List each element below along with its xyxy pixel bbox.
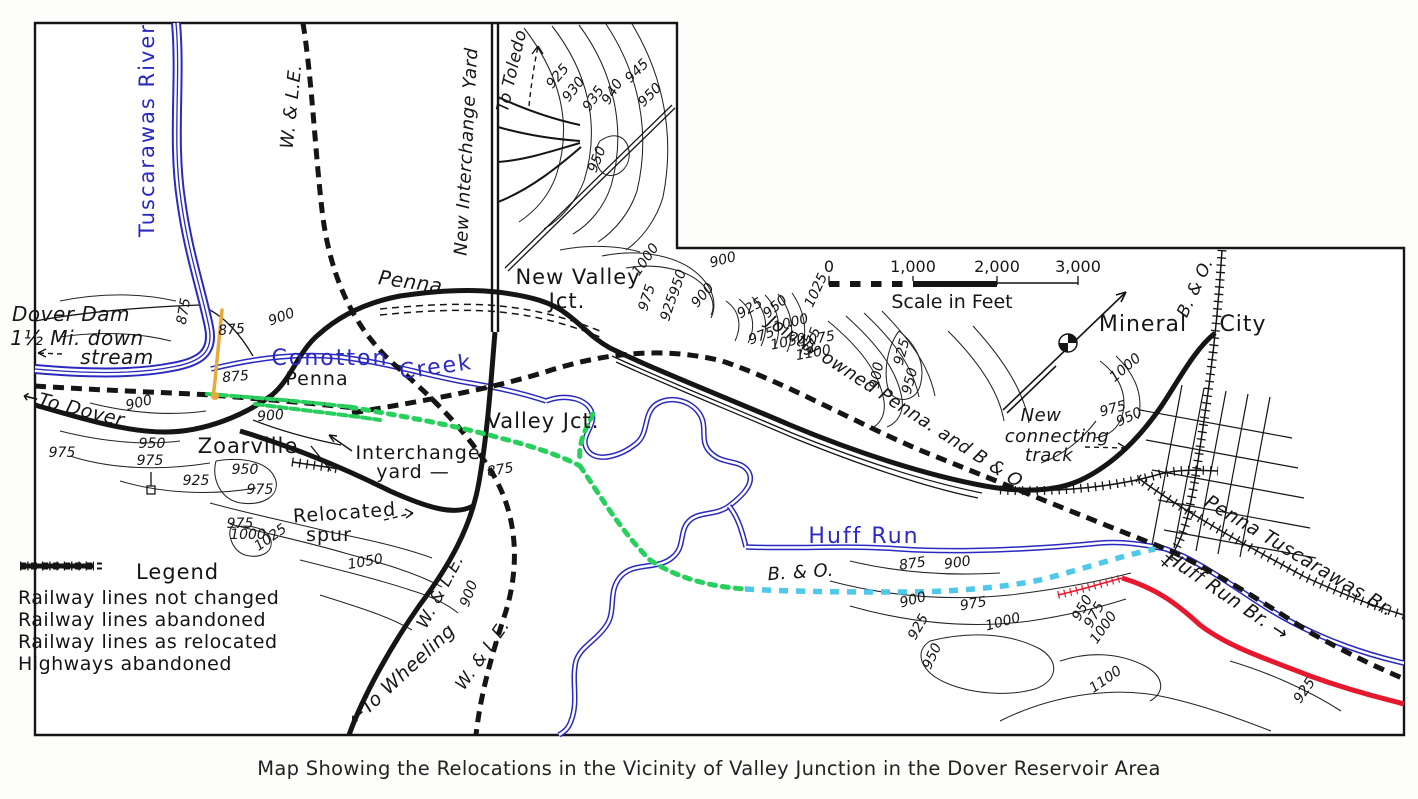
legend-item-highways: Highways abandoned [18,653,279,674]
label-875: 875 [222,368,250,386]
label-zoarville: Zoarville [198,434,299,458]
label-950: 950 [139,436,166,452]
label-penna: Penna [285,368,348,390]
map-caption: Map Showing the Relocations in the Vicin… [0,757,1418,780]
scale-tick-2000: 2,000 [974,257,1020,276]
label-new: New [1021,405,1062,426]
scale-tick-0: 0 [824,257,834,276]
label-new-valley: New Valley [515,265,640,289]
label-valley-jct: Valley Jct. [487,409,600,433]
legend-item-label: Railway lines as relocated [18,631,278,653]
label-spur: spur [306,524,352,546]
label-925: 925 [183,473,210,489]
label-huff-run: Huff Run [808,524,919,549]
map-canvas: 0 1,000 2,000 3,000 Scale in Feet Tuscar… [0,0,1418,799]
label-900: 900 [257,407,285,425]
label-city: City [1219,312,1266,337]
label-950: 950 [232,462,259,478]
map-page: 0 1,000 2,000 3,000 Scale in Feet Tuscar… [0,0,1418,799]
dover-dam-arrow [38,353,62,354]
legend: Legend Railway lines not changed Railway… [18,560,279,675]
legend-item-label: Railway lines not changed [18,587,279,609]
legend-item-abandoned: Railway lines abandoned [18,609,279,630]
label-connecting: connecting [1005,426,1110,447]
legend-title: Legend [136,560,279,584]
legend-item-label: Highways abandoned [18,653,232,675]
scale-tick-1000: 1,000 [890,257,936,276]
label-track: track [1025,445,1074,466]
label-875: 875 [218,321,246,339]
label-yard: yard — [376,461,449,483]
label-975: 975 [49,445,76,461]
label-tuscarawas-river: Tuscarawas River [135,23,159,238]
scale-bar-label: Scale in Feet [891,291,1012,313]
label-mineral: Mineral [1099,312,1187,337]
legend-item-relocated: Railway lines as relocated [18,631,279,652]
label-jct: Jct. [547,289,586,313]
legend-item-label: Railway lines abandoned [18,609,266,631]
label-975: 975 [247,482,274,498]
scale-tick-3000: 3,000 [1055,257,1101,276]
compass-rose-icon [1059,334,1077,352]
legend-item-not-changed: Railway lines not changed [18,587,279,608]
label-975: 975 [137,453,164,469]
orange-crossing-dot [211,392,219,400]
legend-symbol-double-dash [18,560,104,572]
label-dover-dam: Dover Dam [12,302,130,326]
label-stream: stream [80,345,154,369]
